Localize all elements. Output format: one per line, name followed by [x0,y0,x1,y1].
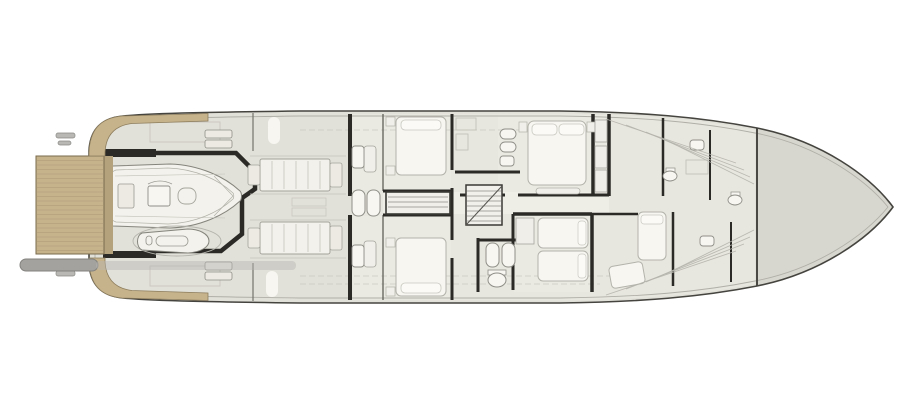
vip-table-b [587,122,595,132]
dayhead-basin-b [502,243,515,267]
swim-platform [36,156,104,254]
vip-toilet [500,129,516,139]
engine-port-turbo [330,163,342,187]
ensuite-fixture-pill-b [367,190,380,216]
nightstand-d [386,287,395,296]
vip-table-a [519,122,527,132]
passerelle [20,259,98,271]
engine-port-block [260,159,330,191]
guest-basin-top [352,146,364,168]
vip-foot-bench [536,188,580,194]
jetski-body [138,229,210,253]
ensuite-fixture-pill-a [352,190,365,216]
vip-pillow-a [532,124,557,135]
yacht-deck-plan-svg [0,0,900,409]
tender-engine-box [118,184,134,208]
nightstand-b [386,166,395,175]
engine-stbd-block [260,222,330,254]
vip-pillow-b [559,124,584,135]
dayhead-toilet [488,273,506,287]
deck-hatch-top [268,117,280,144]
engine-stbd-turbo [330,226,342,250]
nightstand-a [386,117,395,126]
deck-hatch-bottom [266,271,278,297]
guest-bench-bottom [364,241,376,267]
dayhead-basin-a [486,243,499,267]
vip-wardrobe-b [595,146,607,168]
nightstand-c [386,238,395,247]
crew-toilet-a [663,171,677,181]
engine-stbd-gearbox [248,228,260,248]
vip-wardrobe-a [595,120,607,142]
crew-pillow [641,215,663,224]
engine-port-gearbox [248,165,260,185]
vip-basin [500,156,514,166]
guest-pillow-bottom [401,283,441,293]
vip-bidet [500,142,516,152]
yacht-lower-deck-plan [0,0,900,409]
guest-pillow-top [401,120,441,130]
mid-cabin-pillow-a [578,221,586,245]
stern-cleat-bottom-a [56,271,75,276]
crew-toilet-b [728,195,742,205]
stern-cleat-top-b [58,141,71,145]
winch-top-a [205,130,232,138]
crew-basin-b [700,236,714,246]
winch-top-b [205,140,232,148]
winch-bottom-b [205,272,232,280]
tender-console [148,186,170,206]
vip-wardrobe-c [595,170,607,192]
passerelle-inner [96,261,296,270]
stern-cleat-top-a [56,133,75,138]
garage-wall-bar-top [103,149,156,157]
guest-basin-bottom [352,245,364,267]
mid-cabin-pillow-b [578,254,586,278]
guest-corridor-stairs [386,192,450,214]
guest-bench-top [364,146,376,172]
mid-cabin-closet [516,218,534,244]
